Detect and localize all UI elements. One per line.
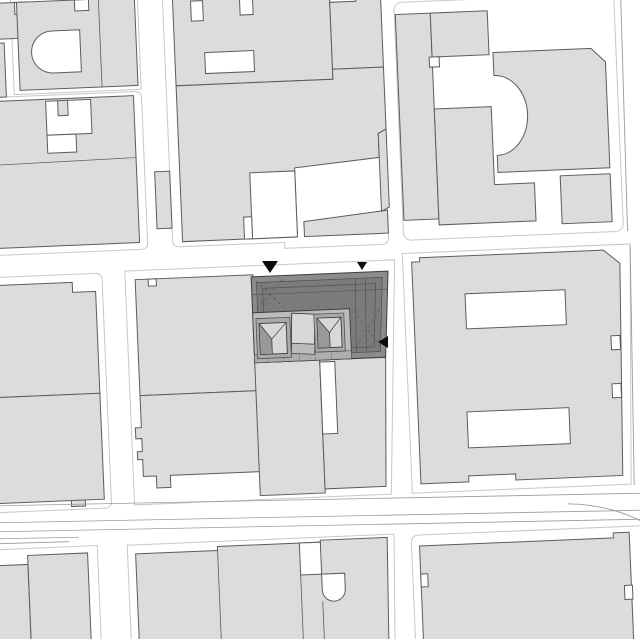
tl-south-court-b — [47, 134, 77, 153]
mid-left-south-tab — [71, 500, 85, 507]
mid-right-building — [411, 249, 628, 484]
mc-nw-notch — [148, 279, 156, 286]
tl-south-court-a — [46, 99, 92, 135]
tc-south-court-step — [244, 217, 253, 239]
bottom-left-parcel-east — [28, 553, 93, 639]
tl-south-tab — [58, 100, 69, 115]
mid-left-north-building — [0, 281, 100, 398]
boulevard-stub-a — [0, 535, 79, 541]
top-right-se-building — [560, 174, 612, 224]
bc-u-notch — [322, 573, 346, 601]
top-left-roof-notch — [74, 0, 88, 11]
mid-left-south-building — [0, 393, 104, 504]
bc-slot — [299, 542, 321, 575]
tc-nw-notch — [191, 1, 204, 21]
layer-proposal-volumes — [256, 311, 346, 359]
site-plan-canvas — [0, 0, 640, 639]
mc-below-site-building — [255, 360, 326, 496]
br-edge-notch-b — [624, 585, 633, 599]
building-top-center-ne — [329, 0, 383, 69]
mr-edge-notch-a — [611, 335, 621, 349]
mr-court-north — [465, 290, 566, 329]
figure-ground-site-plan-map — [0, 0, 640, 639]
far-left-strip-lower — [0, 43, 6, 98]
top-left-d-courtyard — [31, 30, 82, 74]
bottom-left-parcel-west — [0, 564, 32, 639]
tc-nw-gap — [239, 0, 253, 15]
street-median-building — [155, 171, 172, 229]
br-edge-notch-a — [421, 574, 429, 587]
mr-edge-notch-b — [612, 383, 622, 397]
top-right-e-notch — [429, 57, 439, 67]
top-right-e-top-arm — [430, 11, 489, 57]
tc-south-court — [250, 171, 298, 239]
bottom-center-building — [135, 537, 392, 639]
mid-center-nw-building — [135, 275, 258, 396]
mr-court-south — [467, 408, 570, 448]
bottom-right-building — [419, 532, 634, 639]
tc-nw-court — [205, 51, 255, 74]
mc-court-slot — [320, 361, 338, 434]
boulevard-stub-b — [0, 541, 69, 545]
